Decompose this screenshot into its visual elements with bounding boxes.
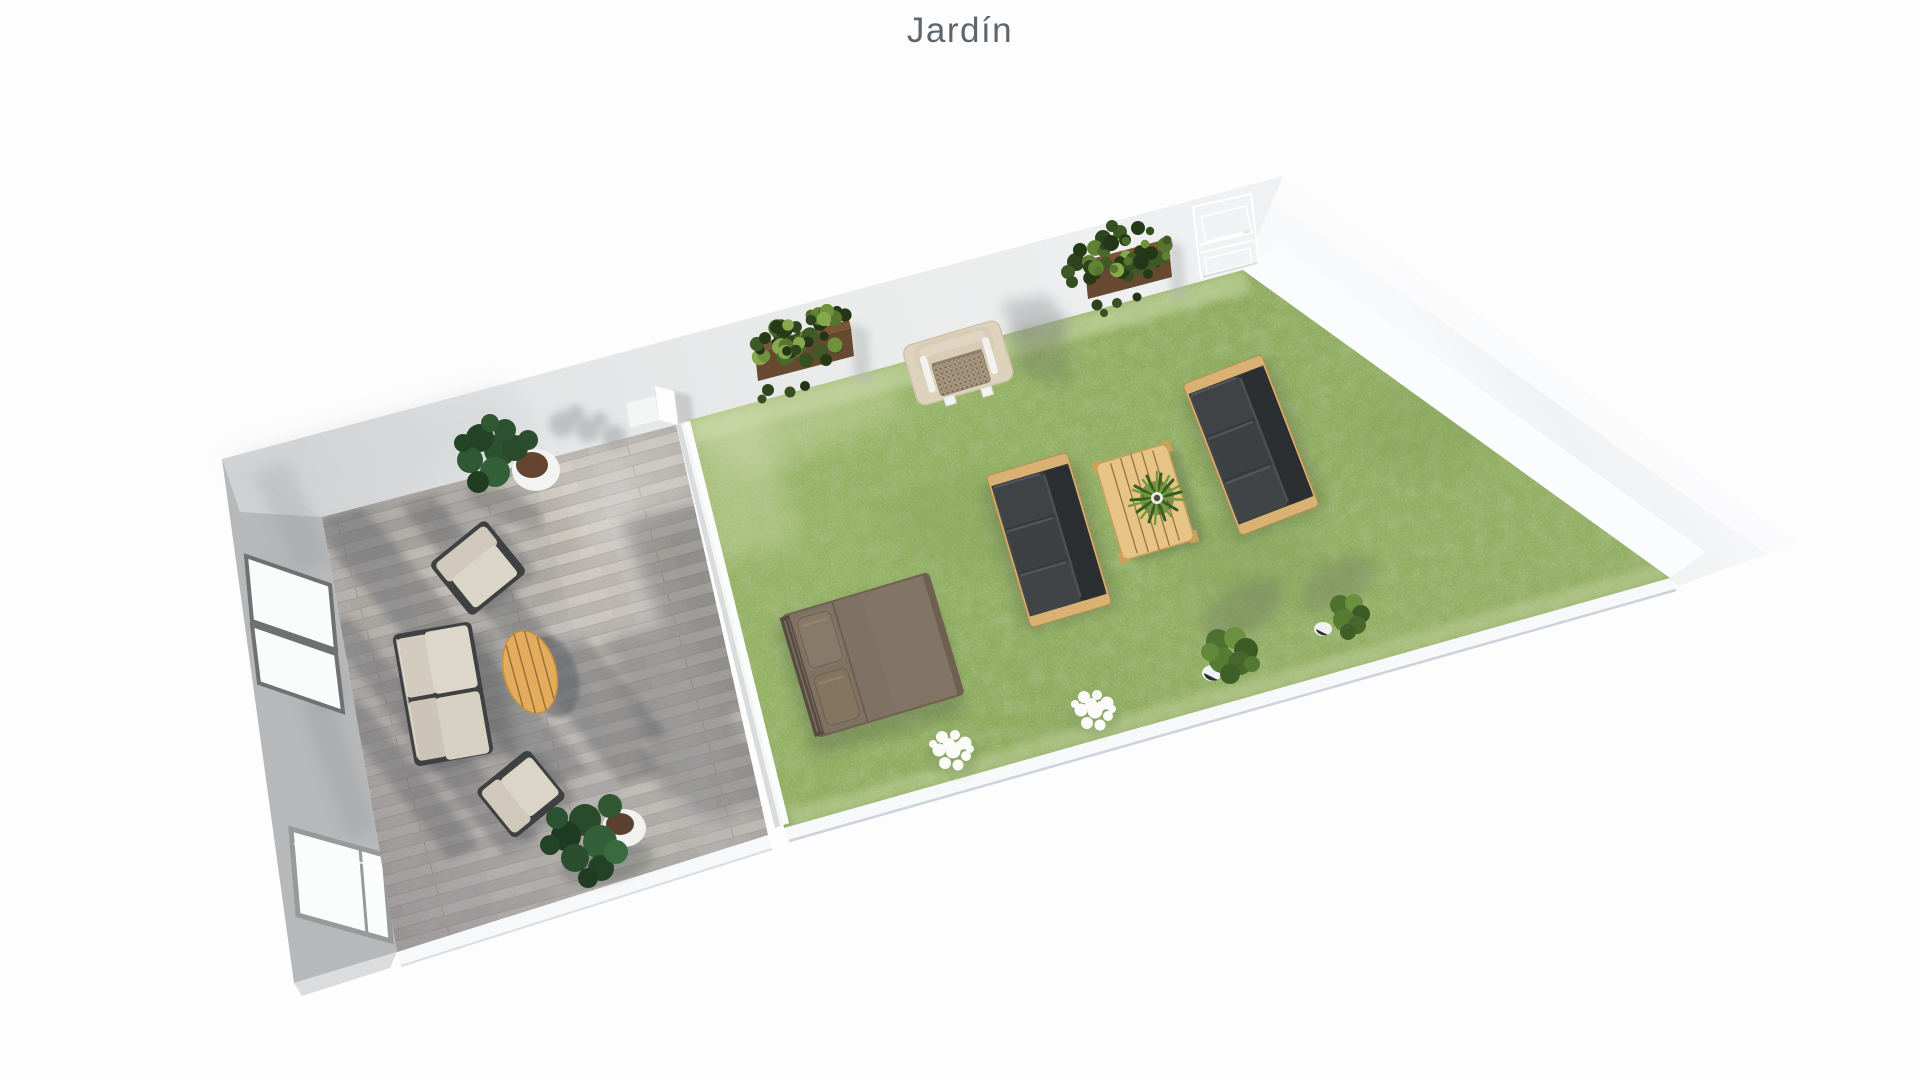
svg-text:Jardín: Jardín <box>907 11 1013 50</box>
